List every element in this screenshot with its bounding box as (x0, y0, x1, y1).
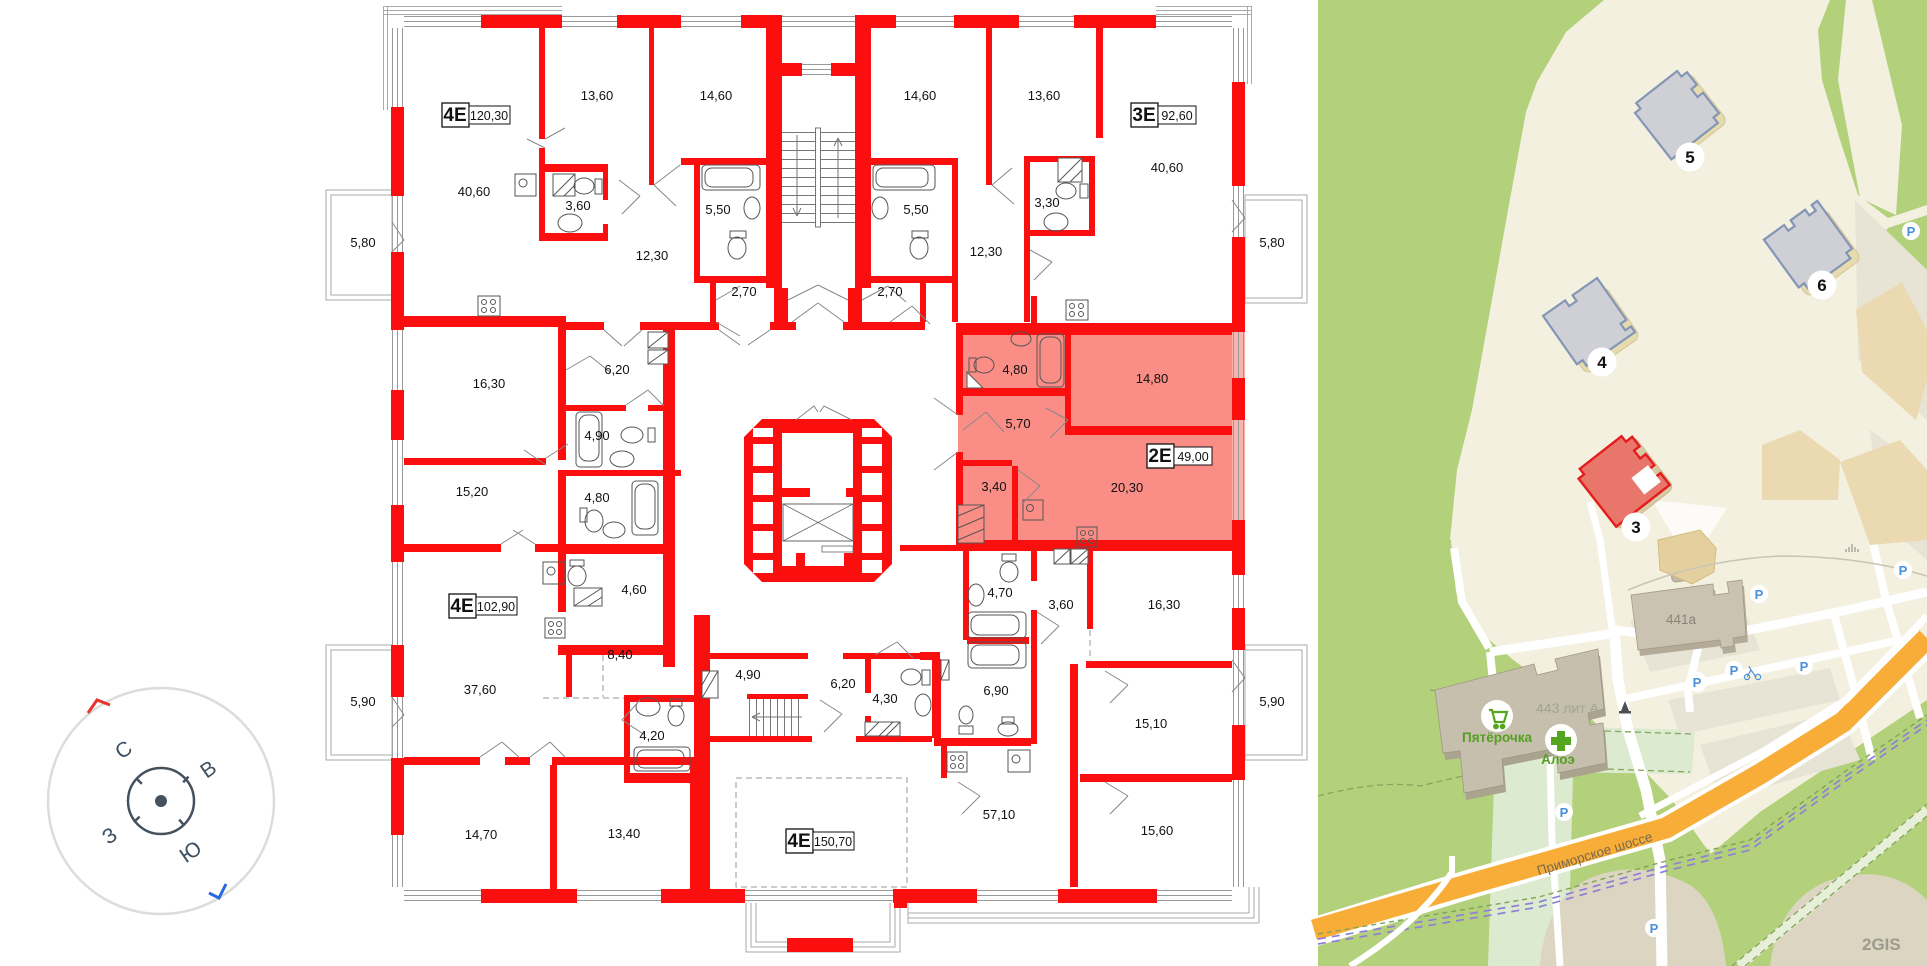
svg-text:5,50: 5,50 (903, 202, 928, 217)
svg-text:P: P (1800, 659, 1809, 674)
svg-text:14,70: 14,70 (465, 827, 498, 842)
svg-text:P: P (1560, 805, 1569, 820)
svg-text:3,30: 3,30 (1034, 195, 1059, 210)
svg-text:40,60: 40,60 (458, 184, 491, 199)
svg-text:6,90: 6,90 (983, 683, 1008, 698)
svg-text:12,30: 12,30 (970, 244, 1003, 259)
svg-text:4: 4 (1597, 353, 1607, 372)
svg-text:P: P (1693, 675, 1702, 690)
svg-text:14,60: 14,60 (904, 88, 937, 103)
svg-text:13,40: 13,40 (608, 826, 641, 841)
svg-text:443 лит А: 443 лит А (1536, 700, 1600, 716)
svg-text:P: P (1899, 563, 1908, 578)
svg-text:3,60: 3,60 (1048, 597, 1073, 612)
svg-text:12,30: 12,30 (636, 248, 669, 263)
svg-text:16,30: 16,30 (1148, 597, 1181, 612)
svg-text:15,10: 15,10 (1135, 716, 1168, 731)
svg-text:15,60: 15,60 (1141, 823, 1174, 838)
svg-text:4,20: 4,20 (639, 728, 664, 743)
svg-text:6,20: 6,20 (604, 362, 629, 377)
svg-text:6: 6 (1817, 276, 1826, 295)
svg-text:49,00: 49,00 (1177, 450, 1208, 464)
svg-text:14,60: 14,60 (700, 88, 733, 103)
svg-text:2Е: 2Е (1148, 446, 1171, 467)
svg-text:4Е: 4Е (443, 105, 466, 126)
svg-text:4,70: 4,70 (987, 585, 1012, 600)
svg-text:16,30: 16,30 (473, 376, 506, 391)
svg-text:3,40: 3,40 (981, 479, 1006, 494)
svg-text:Алоэ: Алоэ (1541, 752, 1575, 767)
svg-text:8,40: 8,40 (607, 647, 632, 662)
svg-text:3Е: 3Е (1132, 105, 1155, 126)
svg-text:5,80: 5,80 (1259, 235, 1284, 250)
svg-text:441а: 441а (1666, 612, 1697, 627)
svg-text:4Е: 4Е (787, 831, 810, 852)
svg-text:5,70: 5,70 (1005, 416, 1030, 431)
svg-text:P: P (1650, 921, 1659, 936)
svg-text:57,10: 57,10 (983, 807, 1016, 822)
svg-text:6,20: 6,20 (830, 676, 855, 691)
svg-text:37,60: 37,60 (464, 682, 497, 697)
svg-text:5,80: 5,80 (350, 235, 375, 250)
svg-text:2GIS: 2GIS (1862, 935, 1901, 954)
svg-text:P: P (1755, 587, 1764, 602)
svg-text:5,90: 5,90 (350, 694, 375, 709)
svg-text:4,80: 4,80 (1002, 362, 1027, 377)
svg-text:40,60: 40,60 (1151, 160, 1184, 175)
svg-text:15,20: 15,20 (456, 484, 489, 499)
svg-text:150,70: 150,70 (814, 835, 852, 849)
svg-text:3: 3 (1631, 518, 1640, 537)
svg-text:13,60: 13,60 (581, 88, 614, 103)
svg-text:2,70: 2,70 (877, 284, 902, 299)
svg-text:P: P (1730, 663, 1739, 678)
svg-text:5,50: 5,50 (705, 202, 730, 217)
svg-text:3,60: 3,60 (565, 198, 590, 213)
svg-text:5: 5 (1685, 148, 1694, 167)
svg-text:120,30: 120,30 (470, 109, 508, 123)
svg-text:2,70: 2,70 (731, 284, 756, 299)
svg-text:4,90: 4,90 (735, 667, 760, 682)
svg-text:4,80: 4,80 (584, 490, 609, 505)
svg-text:4,90: 4,90 (584, 428, 609, 443)
svg-text:4,60: 4,60 (621, 582, 646, 597)
svg-text:92,60: 92,60 (1161, 109, 1192, 123)
svg-text:4Е: 4Е (450, 596, 473, 617)
svg-text:4,30: 4,30 (872, 691, 897, 706)
svg-text:Пятёрочка: Пятёрочка (1462, 730, 1532, 745)
svg-text:P: P (1907, 224, 1916, 239)
svg-text:13,60: 13,60 (1028, 88, 1061, 103)
svg-text:20,30: 20,30 (1111, 480, 1144, 495)
svg-text:5,90: 5,90 (1259, 694, 1284, 709)
svg-text:14,80: 14,80 (1136, 371, 1169, 386)
svg-text:102,90: 102,90 (477, 600, 515, 614)
